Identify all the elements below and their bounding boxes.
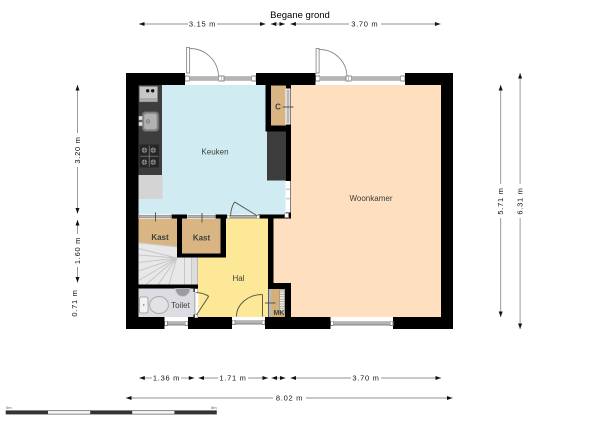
svg-text:5.71 m: 5.71 m (496, 187, 505, 214)
svg-text:6.31 m: 6.31 m (516, 187, 525, 214)
svg-text:0.71 m: 0.71 m (70, 289, 79, 316)
svg-text:1.71 m: 1.71 m (219, 374, 246, 383)
svg-text:Begane grond: Begane grond (270, 10, 330, 21)
svg-text:8.02 m: 8.02 m (276, 394, 303, 403)
svg-text:3.20 m: 3.20 m (73, 136, 82, 163)
svg-text:Toilet: Toilet (171, 301, 190, 310)
svg-text:1.60 m: 1.60 m (73, 237, 82, 264)
svg-text:3.15 m: 3.15 m (189, 20, 216, 29)
svg-text:Woonkamer: Woonkamer (350, 194, 393, 203)
svg-text:Hal: Hal (232, 274, 244, 283)
svg-text:MK: MK (274, 310, 285, 317)
svg-text:3.70 m: 3.70 m (352, 374, 379, 383)
svg-text:C: C (275, 103, 281, 112)
svg-text:5m: 5m (211, 405, 217, 410)
svg-text:1.36 m: 1.36 m (153, 374, 180, 383)
svg-text:Keuken: Keuken (201, 148, 228, 157)
svg-text:3.70 m: 3.70 m (351, 20, 378, 29)
svg-text:Kast: Kast (193, 234, 211, 243)
svg-text:Kast: Kast (151, 233, 169, 242)
svg-text:0m: 0m (6, 405, 12, 410)
